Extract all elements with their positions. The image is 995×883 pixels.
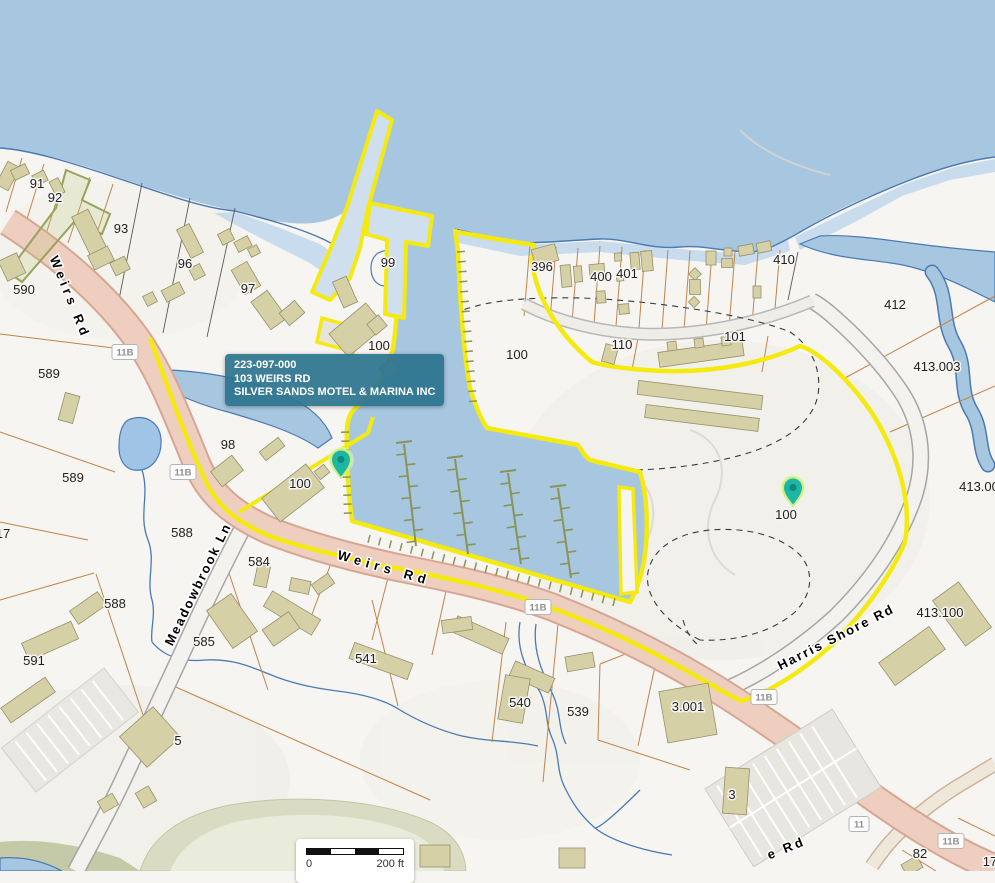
dock-tick — [466, 361, 474, 362]
parcel-label: 82 — [913, 846, 927, 861]
harbor-east-finger — [619, 487, 637, 594]
building — [724, 248, 732, 256]
parcel-label: 100 — [289, 476, 311, 491]
parcel-label: 92 — [48, 190, 62, 205]
building — [596, 291, 606, 304]
route-shield-label: 11B — [756, 693, 773, 704]
building — [722, 259, 733, 268]
dock-tick — [458, 261, 466, 262]
parcel-label: 591 — [23, 653, 45, 668]
dock-tick — [459, 271, 467, 272]
building — [690, 280, 701, 295]
tooltip-owner: SILVER SANDS MOTEL & MARINA INC — [234, 386, 435, 400]
parcel-label: 589 — [62, 470, 84, 485]
parcel-label: 96 — [178, 256, 192, 271]
pin-dot — [789, 484, 796, 491]
dock-tick — [461, 301, 469, 302]
parcel-label: 401 — [616, 266, 638, 281]
route-shield: 11B — [751, 690, 777, 705]
parcel-label: 100 — [506, 347, 528, 362]
pier-finger — [401, 498, 410, 499]
parcel-label: 110 — [612, 337, 633, 352]
building — [738, 244, 755, 256]
parcel-label: 413.00 — [959, 479, 995, 494]
parcel-label: 590 — [13, 282, 35, 297]
parcel-label: 98 — [221, 437, 235, 452]
building — [694, 338, 704, 348]
route-shield-label: 11B — [117, 348, 134, 359]
parcel-label: 91 — [30, 176, 44, 191]
parcel-tooltip: 223-097-000 103 WEIRS RD SILVER SANDS MO… — [225, 354, 444, 406]
parcel-label: 588 — [104, 596, 126, 611]
dock-tick — [463, 321, 471, 322]
pier-finger — [406, 464, 415, 465]
dock-tick — [463, 331, 471, 332]
route-shield-label: 11 — [854, 820, 865, 831]
dock-tick — [459, 281, 467, 282]
parcel-label: 3 — [728, 787, 735, 802]
dock-tick — [469, 401, 477, 402]
dock-tick — [462, 311, 470, 312]
scale-end-label: 200 ft — [376, 858, 404, 870]
map-canvas[interactable]: Weirs RdWeirs RdMeadowbrook LnHarris Sho… — [0, 0, 995, 871]
route-shield-label: 11B — [530, 603, 547, 614]
dock-tick — [467, 371, 475, 372]
building — [560, 265, 572, 288]
building — [641, 251, 654, 272]
parcel-label: 93 — [114, 221, 128, 236]
route-shield: 11B — [525, 600, 551, 615]
parcel-label: 410 — [773, 252, 795, 267]
dock-tick — [467, 381, 475, 382]
building — [573, 266, 582, 283]
building — [619, 304, 630, 315]
pin-dot — [337, 456, 344, 463]
parcel-label: 17 — [983, 854, 995, 869]
dock-tick — [457, 251, 465, 252]
building — [559, 848, 585, 868]
parcel-label: 412 — [884, 297, 906, 312]
scale-start-label: 0 — [306, 858, 312, 870]
building — [667, 341, 677, 351]
route-shield: 11B — [170, 465, 196, 480]
parcel-label: 396 — [531, 259, 553, 274]
dock-tick — [464, 341, 472, 342]
pond — [119, 418, 161, 471]
parcel-label: 539 — [567, 704, 589, 719]
parcel-label: 584 — [248, 554, 270, 569]
parcel-label: 3.001 — [672, 699, 705, 714]
parcel-label: 5 — [174, 733, 181, 748]
parcel-label: 413.100 — [917, 605, 964, 620]
tooltip-address: 103 WEIRS RD — [234, 373, 435, 387]
tooltip-parcel-id: 223-097-000 — [234, 359, 435, 373]
parcel-label: 589 — [38, 366, 60, 381]
parcel-label: 17 — [0, 526, 10, 541]
parcel-label: 588 — [171, 525, 193, 540]
building — [706, 251, 716, 265]
route-shield: 11 — [849, 817, 869, 832]
parcel-label: 101 — [724, 329, 746, 344]
pier-finger — [407, 541, 416, 542]
pier-finger — [409, 486, 418, 487]
route-shield: 11B — [938, 834, 964, 849]
parcel-label: 100 — [775, 507, 797, 522]
pier-finger — [414, 529, 423, 530]
parcel-label: 100 — [368, 338, 390, 353]
dock-tick — [460, 291, 468, 292]
parcel-label: 541 — [355, 651, 377, 666]
dock-tick — [465, 351, 473, 352]
building — [753, 286, 761, 298]
pier-finger — [399, 476, 408, 477]
dock-tick — [468, 391, 476, 392]
pier-finger — [404, 519, 413, 520]
parcel-label: 413.003 — [914, 359, 961, 374]
parcel-label: 585 — [193, 634, 215, 649]
scale-bar-segments — [306, 848, 404, 855]
pier-finger — [412, 508, 421, 509]
route-shield-label: 11B — [175, 468, 192, 479]
parcel-label: 540 — [509, 695, 531, 710]
building — [614, 253, 622, 262]
parcel-label: 400 — [590, 269, 612, 284]
route-shield-label: 11B — [943, 837, 960, 848]
scale-bar: 0 200 ft — [296, 839, 414, 883]
parcel-label: 97 — [241, 281, 255, 296]
building — [420, 845, 450, 867]
building — [722, 767, 749, 815]
parcel-label: 99 — [381, 255, 395, 270]
route-shield: 11B — [112, 345, 138, 360]
pier-finger — [396, 454, 405, 455]
